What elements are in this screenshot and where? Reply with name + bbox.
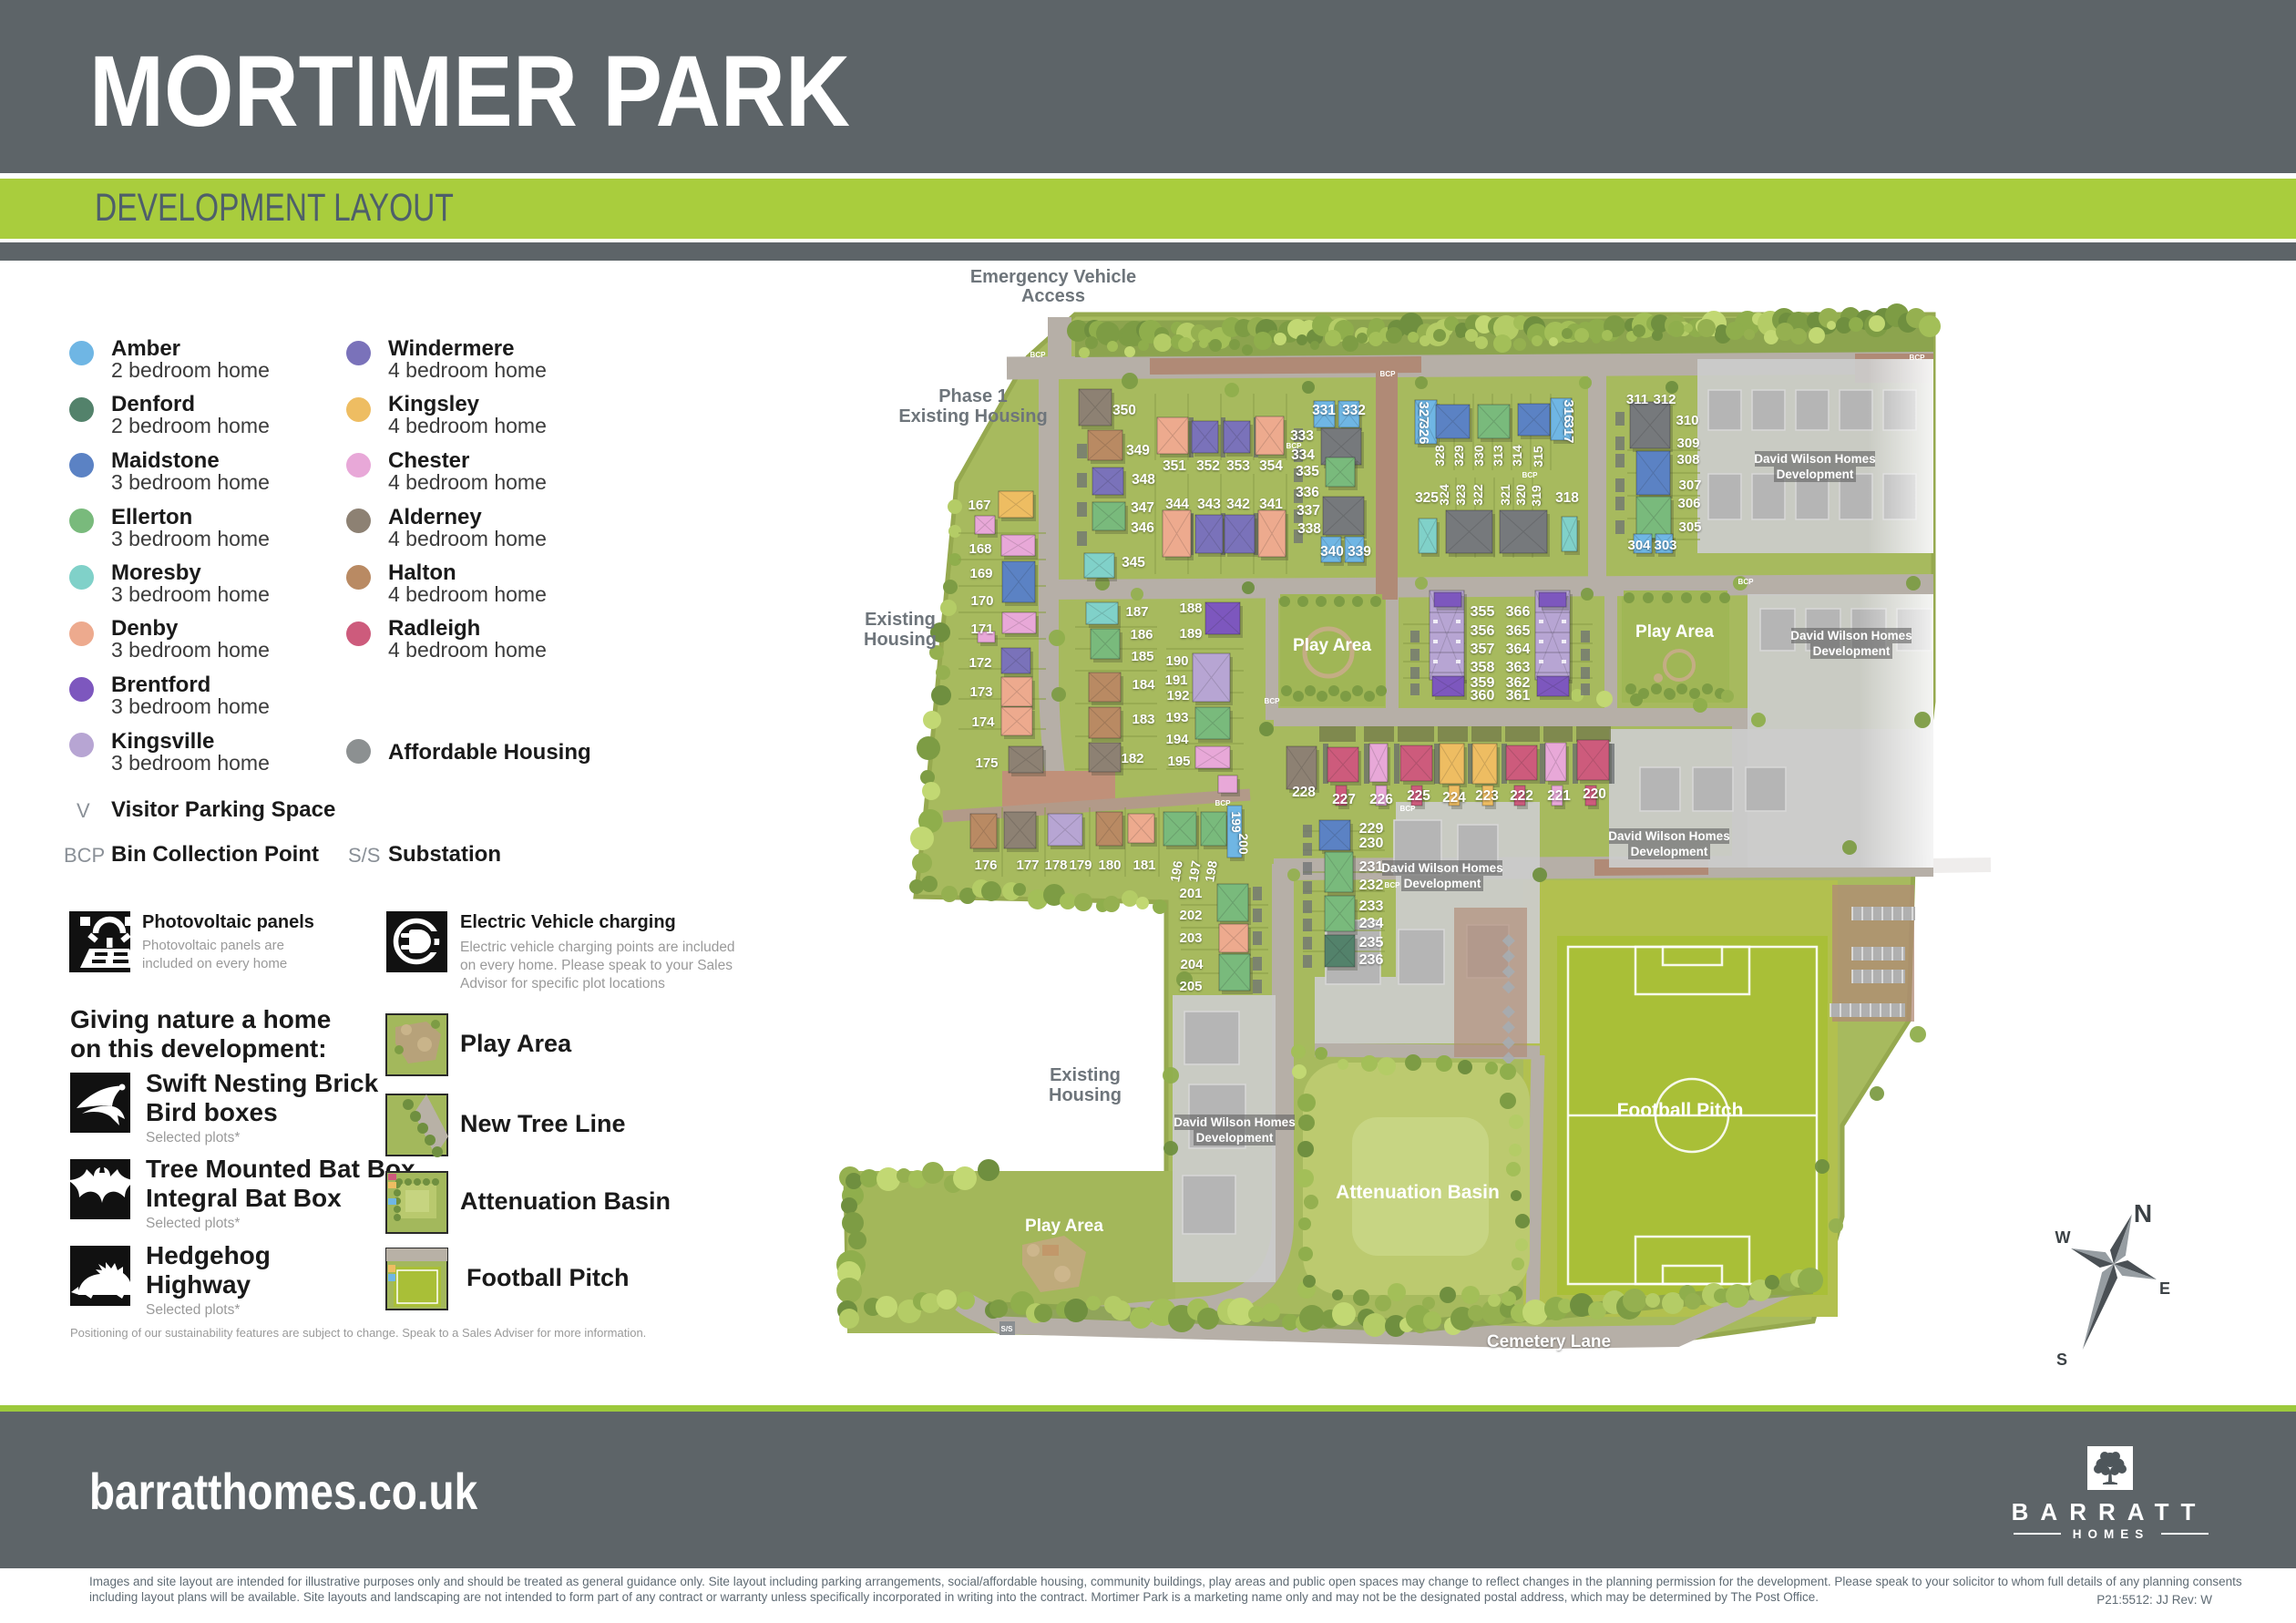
svg-text:193: 193	[1165, 710, 1188, 725]
svg-text:312: 312	[1653, 392, 1676, 407]
svg-text:New Tree Line: New Tree Line	[460, 1110, 626, 1137]
svg-text:227: 227	[1332, 792, 1356, 807]
svg-text:344: 344	[1165, 497, 1189, 512]
svg-text:222: 222	[1510, 788, 1533, 804]
svg-text:315: 315	[1531, 446, 1545, 467]
svg-text:Development: Development	[1631, 845, 1708, 858]
svg-text:BARRATT: BARRATT	[2012, 1498, 2208, 1525]
svg-text:194: 194	[1165, 732, 1189, 747]
svg-text:316: 316	[1561, 399, 1576, 422]
svg-text:349: 349	[1126, 443, 1150, 458]
svg-text:236: 236	[1359, 952, 1384, 968]
svg-text:Development: Development	[1404, 877, 1481, 890]
svg-text:357: 357	[1471, 642, 1495, 657]
svg-text:Play Area: Play Area	[1025, 1217, 1103, 1236]
svg-text:David Wilson Homes: David Wilson Homes	[1381, 861, 1502, 875]
svg-text:205: 205	[1179, 979, 1202, 994]
svg-text:341: 341	[1259, 497, 1283, 512]
svg-text:226: 226	[1369, 792, 1393, 807]
svg-text:David Wilson Homes: David Wilson Homes	[1174, 1115, 1295, 1129]
svg-text:Electric Vehicle charging: Electric Vehicle charging	[460, 912, 676, 932]
svg-text:202: 202	[1179, 908, 1202, 923]
svg-text:Existing Housing: Existing Housing	[898, 406, 1047, 426]
svg-text:189: 189	[1179, 626, 1202, 642]
svg-text:319: 319	[1529, 485, 1543, 507]
svg-text:180: 180	[1098, 858, 1121, 873]
svg-text:on every home. Please speak to: on every home. Please speak to your Sale…	[460, 958, 733, 973]
svg-text:173: 173	[969, 684, 992, 700]
svg-text:343: 343	[1197, 497, 1221, 512]
svg-text:Football Pitch: Football Pitch	[1617, 1100, 1744, 1121]
svg-text:184: 184	[1132, 677, 1155, 693]
svg-text:313: 313	[1491, 445, 1505, 467]
svg-text:Development: Development	[1777, 467, 1854, 481]
svg-text:232: 232	[1359, 878, 1384, 893]
svg-text:E: E	[2159, 1279, 2170, 1298]
svg-text:174: 174	[971, 714, 995, 730]
svg-text:Housing: Housing	[864, 630, 937, 650]
svg-text:Attenuation Basin: Attenuation Basin	[460, 1187, 671, 1215]
svg-text:337: 337	[1297, 503, 1320, 519]
svg-text:235: 235	[1359, 935, 1384, 950]
svg-text:348: 348	[1132, 472, 1155, 488]
svg-text:Development: Development	[1813, 644, 1891, 658]
svg-text:231: 231	[1359, 859, 1384, 875]
svg-text:190: 190	[1165, 653, 1188, 669]
svg-text:303: 303	[1654, 538, 1676, 553]
svg-text:Selected plots*: Selected plots*	[146, 1130, 240, 1145]
svg-text:187: 187	[1125, 604, 1148, 620]
svg-text:BCP: BCP	[1385, 881, 1401, 889]
svg-text:Access: Access	[1021, 286, 1085, 306]
svg-text:335: 335	[1296, 464, 1319, 479]
svg-text:199: 199	[1229, 811, 1244, 833]
svg-text:339: 339	[1348, 544, 1371, 560]
svg-text:203: 203	[1179, 930, 1202, 946]
svg-text:177: 177	[1016, 858, 1039, 873]
svg-text:186: 186	[1130, 627, 1153, 642]
svg-text:325: 325	[1415, 490, 1439, 506]
svg-text:172: 172	[969, 655, 991, 671]
svg-text:Highway: Highway	[146, 1270, 251, 1299]
svg-text:233: 233	[1359, 899, 1384, 914]
svg-text:346: 346	[1131, 520, 1154, 536]
svg-text:365: 365	[1506, 623, 1531, 639]
svg-text:221: 221	[1547, 788, 1571, 804]
svg-text:366: 366	[1506, 604, 1531, 620]
svg-text:195: 195	[1167, 754, 1190, 769]
svg-text:192: 192	[1166, 688, 1189, 704]
svg-text:345: 345	[1122, 555, 1145, 570]
svg-text:176: 176	[974, 858, 997, 873]
svg-text:185: 185	[1131, 649, 1153, 664]
svg-text:305: 305	[1678, 519, 1701, 535]
svg-text:BCP: BCP	[1522, 471, 1539, 479]
svg-text:201: 201	[1179, 886, 1202, 901]
svg-text:Bird boxes: Bird boxes	[146, 1098, 278, 1126]
svg-text:BCP: BCP	[1265, 697, 1281, 705]
svg-text:on this development:: on this development:	[70, 1034, 327, 1063]
svg-text:224: 224	[1442, 790, 1466, 806]
svg-text:188: 188	[1179, 601, 1202, 616]
svg-text:223: 223	[1475, 788, 1499, 804]
svg-text:171: 171	[970, 621, 993, 637]
svg-text:Attenuation Basin: Attenuation Basin	[1336, 1182, 1500, 1203]
svg-text:Cemetery Lane: Cemetery Lane	[1487, 1332, 1611, 1351]
svg-text:BCP: BCP	[1910, 354, 1926, 362]
svg-text:BCP: BCP	[1380, 370, 1397, 378]
svg-text:Selected plots*: Selected plots*	[146, 1302, 240, 1318]
svg-text:167: 167	[968, 498, 990, 513]
svg-text:Play Area: Play Area	[460, 1030, 572, 1057]
svg-text:Electric vehicle charging poin: Electric vehicle charging points are inc…	[460, 940, 735, 955]
svg-text:234: 234	[1359, 916, 1384, 931]
svg-text:324: 324	[1437, 484, 1451, 506]
svg-text:352: 352	[1196, 458, 1220, 474]
svg-text:Existing: Existing	[865, 610, 936, 630]
svg-text:229: 229	[1359, 821, 1384, 837]
svg-text:308: 308	[1676, 452, 1699, 467]
svg-text:351: 351	[1163, 458, 1186, 474]
svg-text:328: 328	[1432, 445, 1447, 467]
svg-text:Play Area: Play Area	[1635, 622, 1714, 642]
svg-text:329: 329	[1451, 445, 1466, 467]
svg-text:338: 338	[1297, 521, 1321, 537]
svg-text:David Wilson Homes: David Wilson Homes	[1790, 629, 1912, 642]
svg-text:230: 230	[1359, 836, 1384, 851]
svg-text:Swift Nesting Brick: Swift Nesting Brick	[146, 1069, 379, 1097]
svg-text:BCP: BCP	[1215, 799, 1232, 807]
svg-text:361: 361	[1506, 688, 1531, 704]
svg-text:Housing: Housing	[1049, 1085, 1122, 1105]
svg-text:170: 170	[970, 593, 993, 609]
svg-text:314: 314	[1510, 445, 1524, 467]
svg-text:364: 364	[1506, 642, 1531, 657]
svg-text:310: 310	[1676, 413, 1698, 428]
svg-text:Giving nature a home: Giving nature a home	[70, 1005, 331, 1033]
svg-text:347: 347	[1131, 500, 1154, 516]
svg-text:326: 326	[1416, 421, 1431, 444]
svg-text:320: 320	[1513, 484, 1528, 506]
svg-text:Selected plots*: Selected plots*	[146, 1216, 240, 1231]
svg-text:358: 358	[1471, 660, 1495, 675]
svg-text:321: 321	[1498, 484, 1512, 506]
svg-text:David Wilson Homes: David Wilson Homes	[1754, 452, 1875, 466]
svg-text:311: 311	[1626, 392, 1648, 407]
svg-text:Existing: Existing	[1050, 1065, 1121, 1085]
svg-text:Photovoltaic panels are: Photovoltaic panels are	[142, 938, 284, 953]
svg-text:304: 304	[1627, 538, 1651, 553]
svg-text:Football Pitch: Football Pitch	[466, 1264, 630, 1291]
svg-text:323: 323	[1453, 484, 1468, 506]
svg-text:181: 181	[1133, 858, 1155, 873]
svg-text:BCP: BCP	[1738, 578, 1755, 586]
svg-text:360: 360	[1471, 688, 1495, 704]
svg-text:331: 331	[1312, 403, 1336, 418]
svg-text:183: 183	[1132, 712, 1154, 727]
svg-text:179: 179	[1069, 858, 1092, 873]
svg-text:350: 350	[1112, 403, 1136, 418]
svg-text:N: N	[2134, 1199, 2152, 1228]
svg-text:220: 220	[1583, 786, 1606, 802]
svg-text:204: 204	[1180, 957, 1204, 972]
svg-text:191: 191	[1164, 673, 1187, 688]
svg-text:S/S: S/S	[1001, 1325, 1014, 1333]
svg-text:S: S	[2056, 1351, 2067, 1369]
svg-text:Advisor for specific plot loca: Advisor for specific plot locations	[460, 976, 665, 991]
svg-text:Photovoltaic panels: Photovoltaic panels	[142, 912, 314, 932]
svg-text:178: 178	[1044, 858, 1067, 873]
svg-text:200: 200	[1236, 833, 1251, 855]
svg-text:Emergency Vehicle: Emergency Vehicle	[970, 267, 1136, 287]
svg-text:363: 363	[1506, 660, 1531, 675]
svg-text:168: 168	[969, 541, 991, 557]
svg-text:318: 318	[1555, 490, 1579, 506]
svg-text:182: 182	[1121, 751, 1143, 766]
svg-text:W: W	[2055, 1228, 2071, 1247]
svg-text:175: 175	[975, 755, 998, 771]
svg-text:BCP: BCP	[1286, 442, 1303, 450]
svg-text:included on every home: included on every home	[142, 956, 287, 971]
svg-text:Development: Development	[1196, 1131, 1274, 1145]
svg-text:169: 169	[969, 566, 992, 581]
svg-text:307: 307	[1678, 478, 1701, 493]
svg-text:HOMES: HOMES	[2073, 1527, 2150, 1541]
svg-text:Phase 1: Phase 1	[938, 386, 1008, 406]
svg-text:228: 228	[1292, 785, 1316, 800]
svg-text:332: 332	[1342, 403, 1366, 418]
svg-text:330: 330	[1471, 445, 1486, 467]
svg-text:356: 356	[1471, 623, 1495, 639]
svg-text:340: 340	[1320, 544, 1344, 560]
svg-text:Hedgehog: Hedgehog	[146, 1241, 271, 1269]
svg-text:309: 309	[1676, 436, 1699, 451]
svg-text:David Wilson Homes: David Wilson Homes	[1608, 829, 1729, 843]
svg-text:342: 342	[1226, 497, 1250, 512]
svg-text:BCP: BCP	[1400, 805, 1417, 813]
svg-text:354: 354	[1259, 458, 1283, 474]
svg-text:355: 355	[1471, 604, 1495, 620]
svg-text:Tree Mounted Bat Box: Tree Mounted Bat Box	[146, 1155, 415, 1183]
svg-text:353: 353	[1226, 458, 1250, 474]
svg-text:306: 306	[1677, 496, 1700, 511]
svg-text:336: 336	[1296, 485, 1319, 500]
svg-text:BCP: BCP	[1030, 351, 1047, 359]
svg-text:317: 317	[1561, 420, 1576, 443]
svg-text:322: 322	[1471, 484, 1485, 506]
svg-text:Play Area: Play Area	[1293, 636, 1371, 655]
svg-text:Integral Bat Box: Integral Bat Box	[146, 1184, 342, 1212]
svg-text:225: 225	[1407, 788, 1430, 804]
